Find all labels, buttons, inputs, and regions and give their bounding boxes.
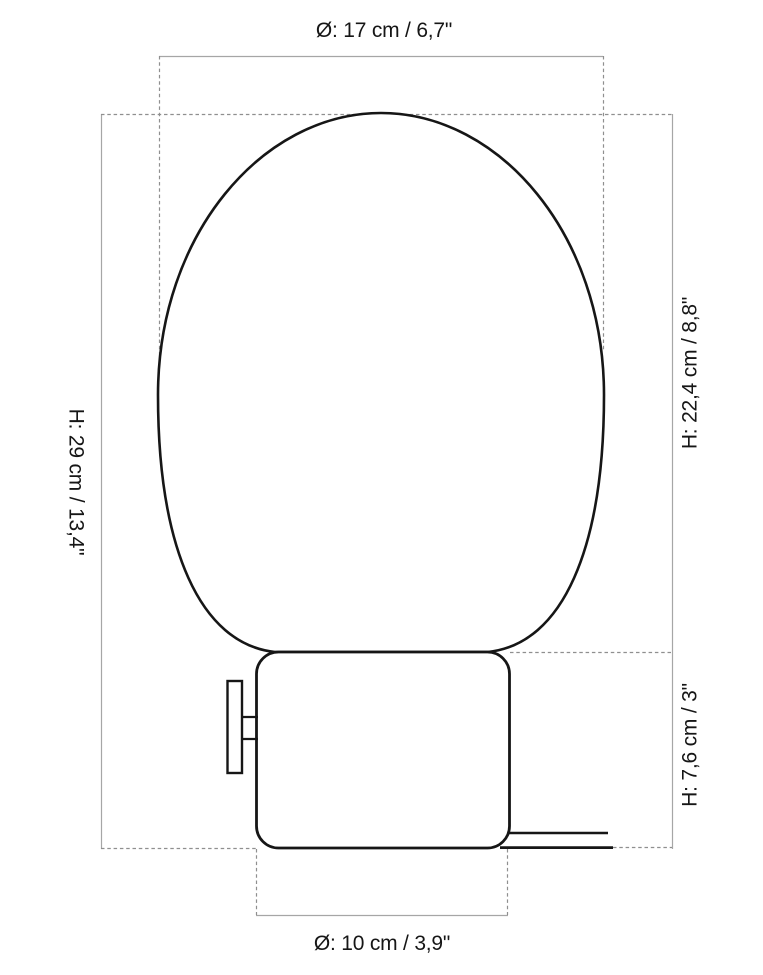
base-outline: [257, 652, 510, 848]
lamp-outline: [158, 113, 613, 848]
lamp-dimension-diagram: Ø: 17 cm / 6,7" H: 29 cm / 13,4" H: 22,4…: [0, 0, 763, 975]
knob: [228, 681, 243, 773]
total-height-label: H: 29 cm / 13,4": [64, 409, 87, 556]
globe-diameter-label: Ø: 17 cm / 6,7": [316, 19, 452, 42]
base-diameter-label: Ø: 10 cm / 3,9": [314, 932, 450, 955]
globe-height-label: H: 22,4 cm / 8,8": [679, 297, 702, 449]
dimension-drawing: Ø: 17 cm / 6,7" H: 29 cm / 13,4" H: 22,4…: [0, 0, 763, 975]
base-height-label: H: 7,6 cm / 3": [679, 683, 702, 807]
globe-outline: [158, 113, 604, 652]
